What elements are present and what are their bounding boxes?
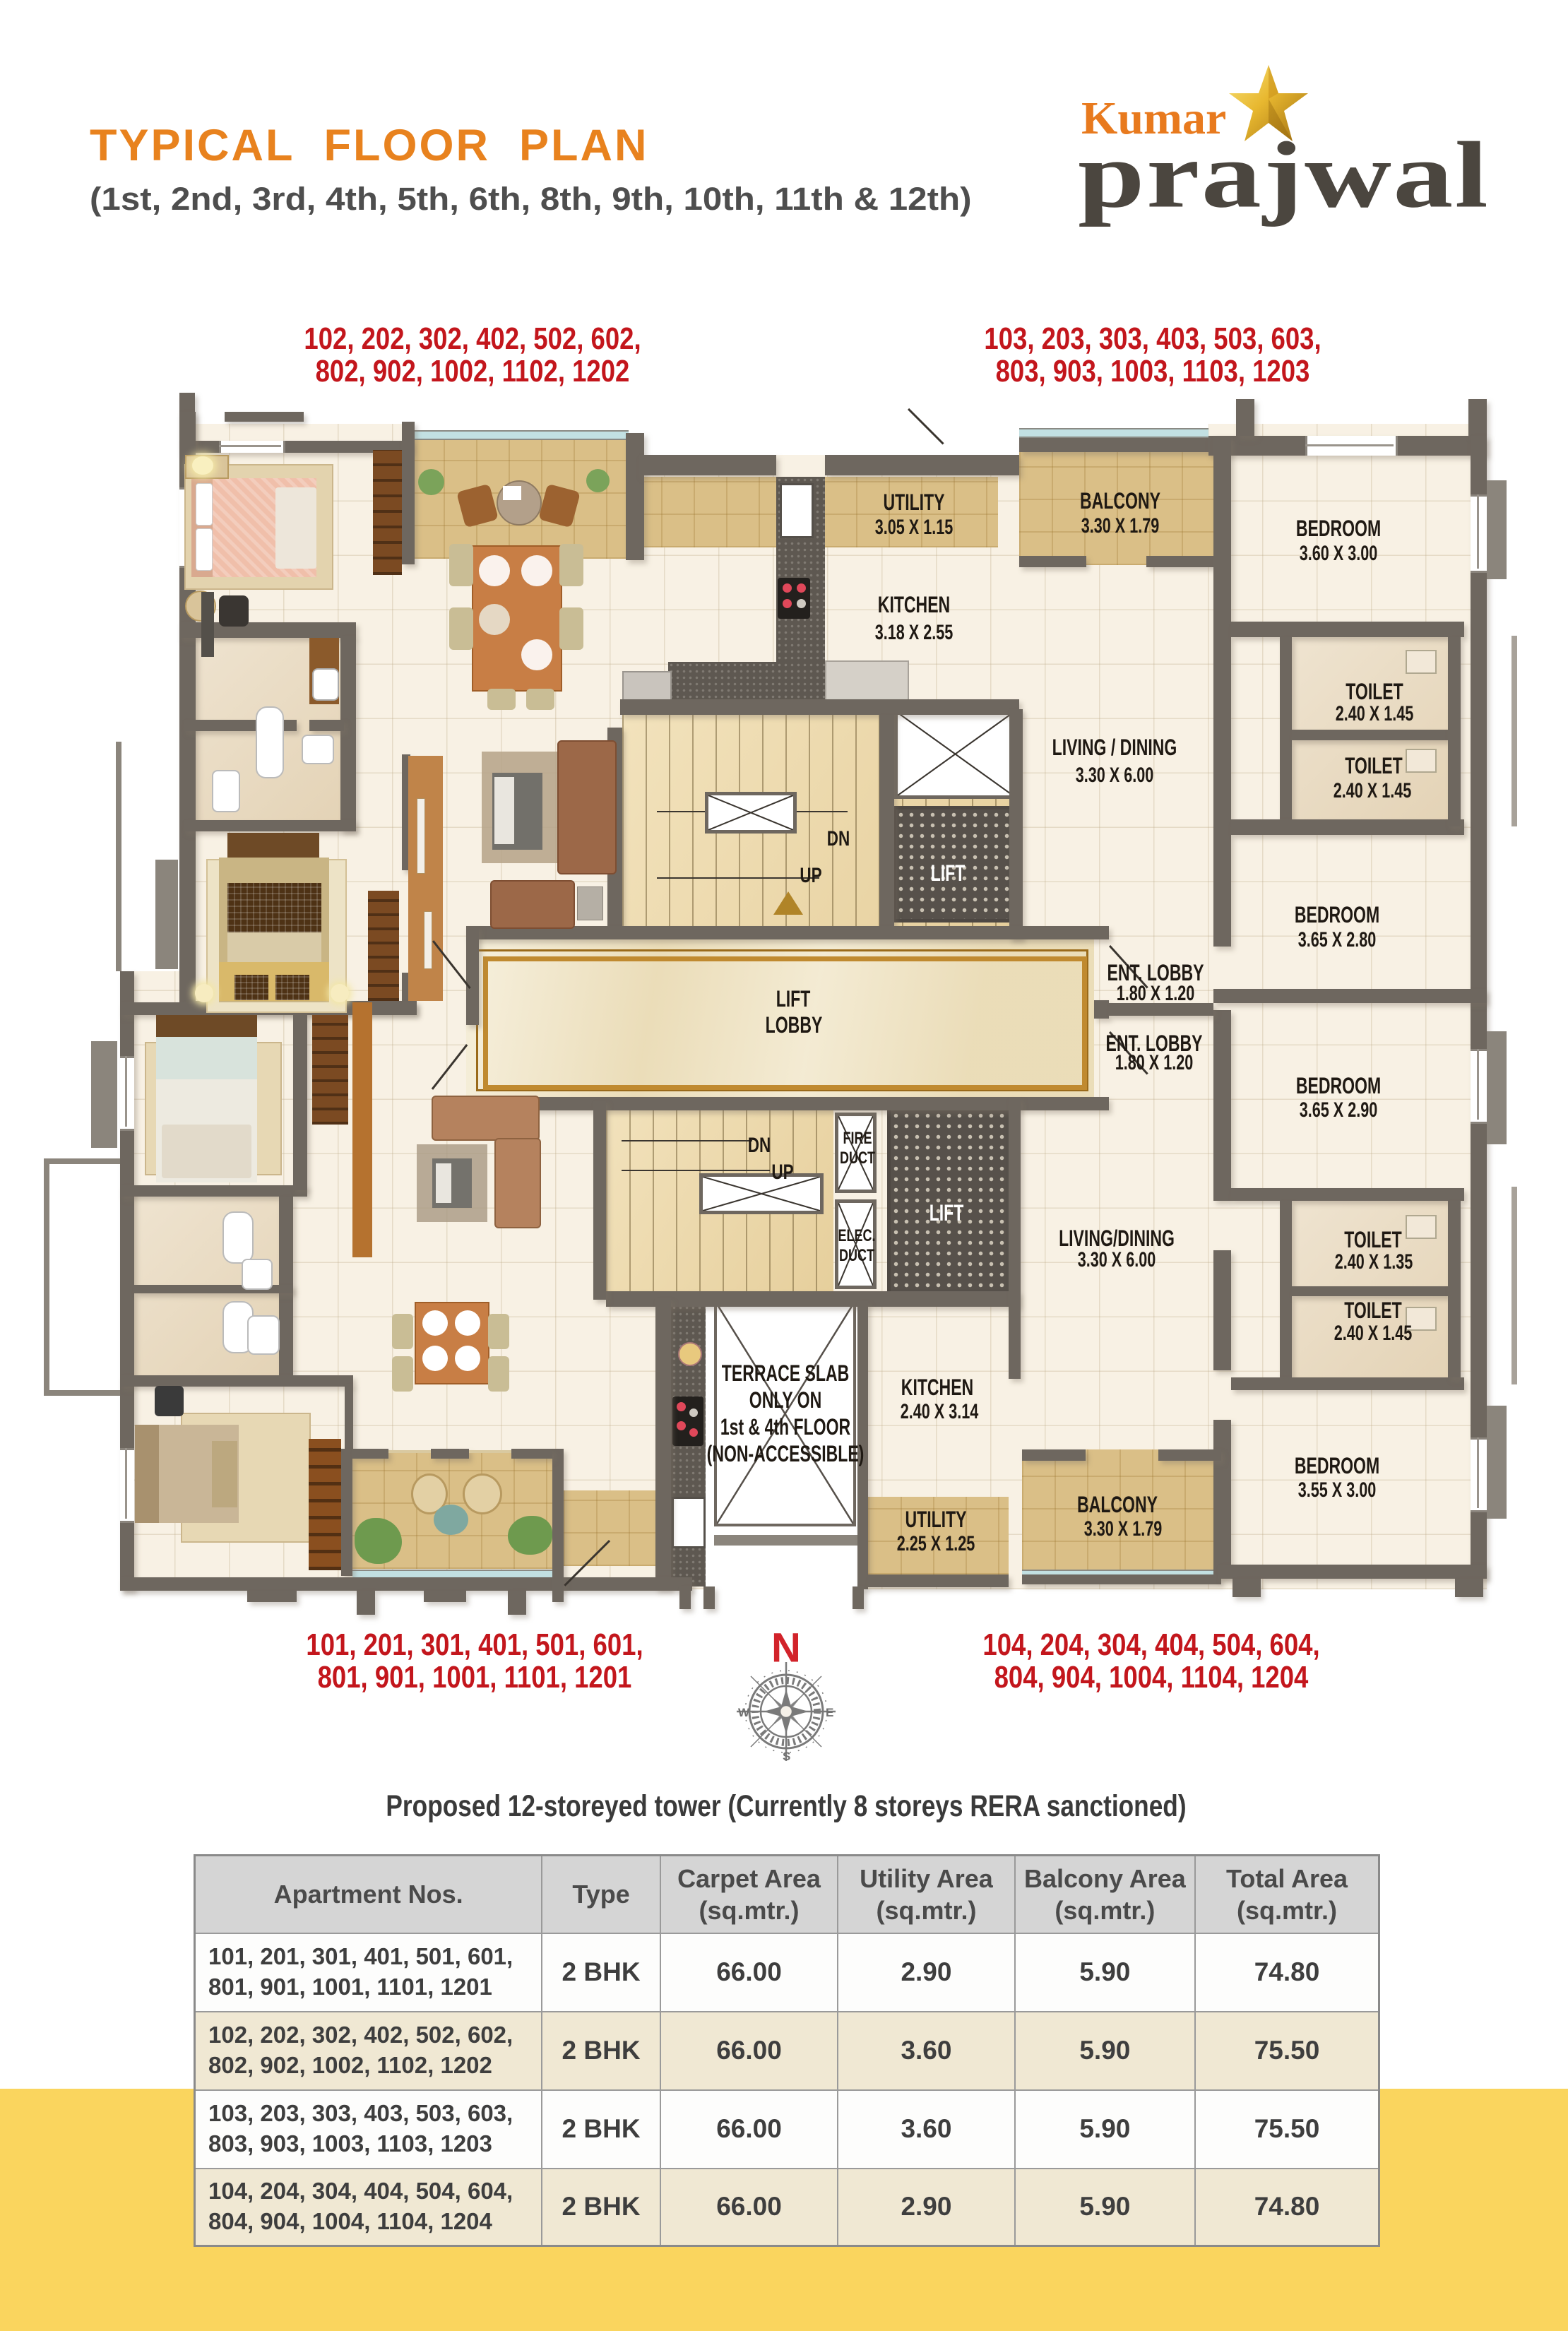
- svg-text:W: W: [738, 1706, 750, 1719]
- svg-text:S: S: [783, 1750, 790, 1763]
- svg-text:E: E: [826, 1706, 833, 1719]
